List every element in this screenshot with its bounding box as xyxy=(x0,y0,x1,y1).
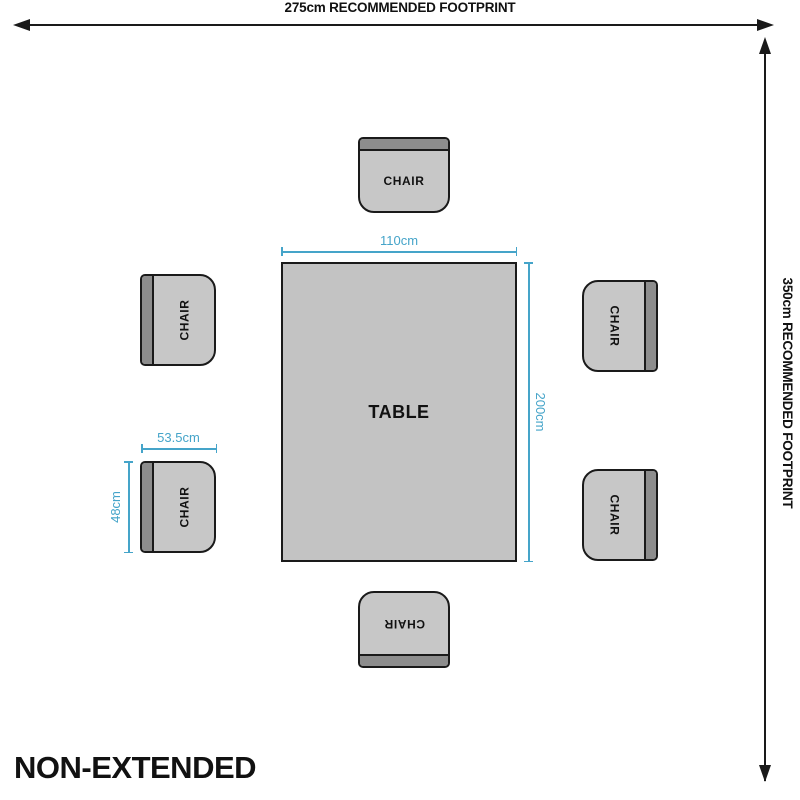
footprint-width-label: 275cm RECOMMENDED FOOTPRINT xyxy=(0,0,800,15)
chair-back xyxy=(360,654,448,666)
chair-label: CHAIR xyxy=(177,300,191,341)
arrowhead-down-icon xyxy=(759,765,771,782)
chair-back xyxy=(644,471,656,559)
chair-seat: CHAIR xyxy=(360,593,448,654)
chair-right-middle: CHAIR xyxy=(582,280,658,372)
table-height-dimension-line xyxy=(528,262,530,562)
table-width-dimension-line xyxy=(281,251,517,253)
footprint-height-label: 350cm RECOMMENDED FOOTPRINT xyxy=(779,193,795,593)
table-width-label: 110cm xyxy=(281,233,517,248)
chair-height-dimension-line xyxy=(128,461,130,553)
chair-seat: CHAIR xyxy=(360,151,448,211)
chair-seat: CHAIR xyxy=(154,463,214,551)
chair-width-label: 53.5cm xyxy=(140,430,217,445)
chair-right-bottom: CHAIR xyxy=(582,469,658,561)
dimension-tick xyxy=(516,247,518,256)
arrowhead-up-icon xyxy=(759,37,771,54)
chair-bottom: CHAIR xyxy=(358,591,450,668)
chair-top: CHAIR xyxy=(358,137,450,213)
chair-left-bottom: CHAIR xyxy=(140,461,216,553)
footprint-width-arrow-line xyxy=(16,24,771,26)
table-height-label: 200cm xyxy=(532,382,548,442)
chair-back xyxy=(644,282,656,370)
chair-back xyxy=(142,463,154,551)
dimension-tick xyxy=(124,461,133,463)
chair-label: CHAIR xyxy=(177,487,191,528)
chair-label: CHAIR xyxy=(384,617,425,631)
chair-label: CHAIR xyxy=(607,306,621,347)
chair-back xyxy=(142,276,154,364)
table-label: TABLE xyxy=(368,402,429,423)
chair-label: CHAIR xyxy=(384,174,425,188)
arrowhead-left-icon xyxy=(13,19,30,31)
dimension-tick xyxy=(124,552,133,554)
chair-width-dimension-line xyxy=(141,448,217,450)
chair-back xyxy=(360,139,448,151)
dimension-tick xyxy=(524,262,533,264)
arrowhead-right-icon xyxy=(757,19,774,31)
dimension-tick xyxy=(281,247,283,256)
footprint-diagram: 275cm RECOMMENDED FOOTPRINT 350cm RECOMM… xyxy=(0,0,800,800)
chair-seat: CHAIR xyxy=(584,282,644,370)
footprint-height-arrow-line xyxy=(764,40,766,781)
dimension-tick xyxy=(216,444,218,453)
chair-label: CHAIR xyxy=(607,495,621,536)
diagram-title: NON-EXTENDED xyxy=(14,750,256,786)
chair-left-middle: CHAIR xyxy=(140,274,216,366)
dimension-tick xyxy=(141,444,143,453)
table: TABLE xyxy=(281,262,517,562)
chair-height-label: 48cm xyxy=(108,482,124,532)
chair-seat: CHAIR xyxy=(584,471,644,559)
chair-seat: CHAIR xyxy=(154,276,214,364)
dimension-tick xyxy=(524,561,533,563)
